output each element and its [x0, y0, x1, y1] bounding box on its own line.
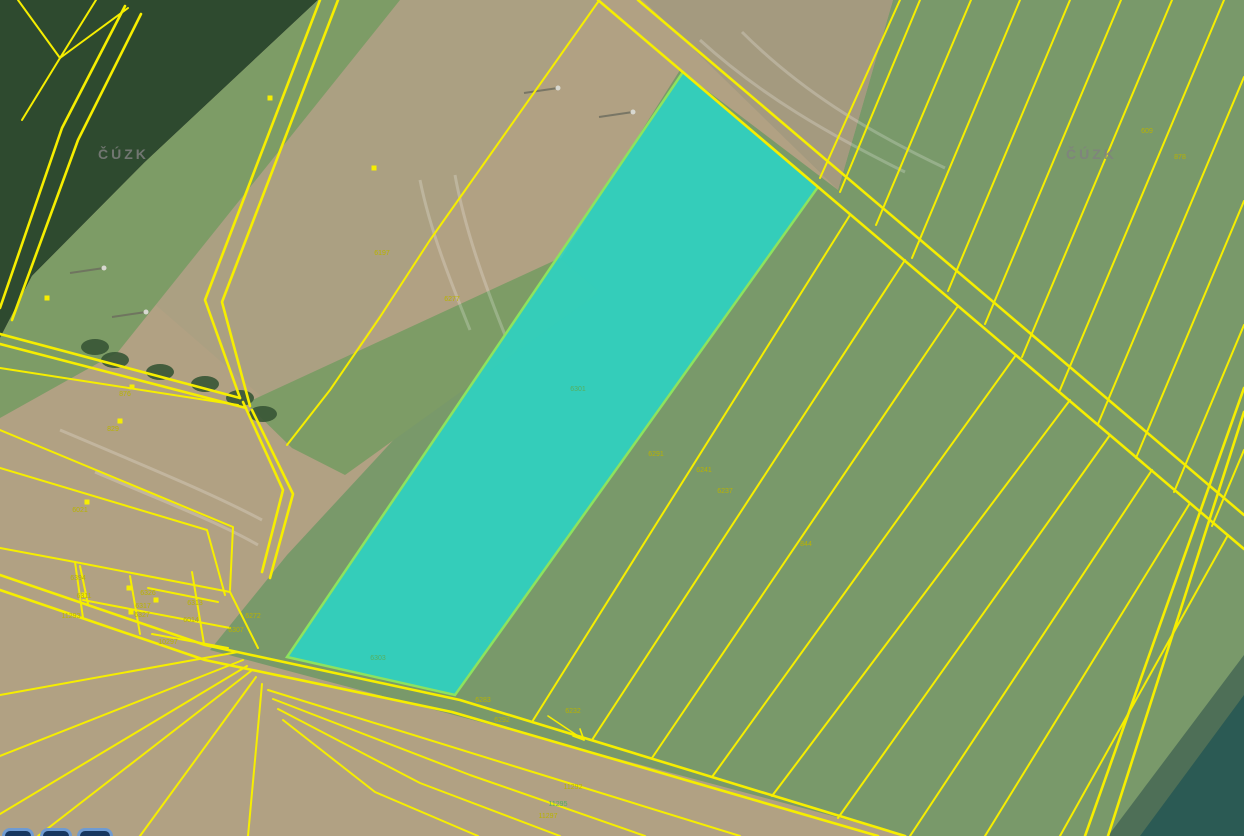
parcel-number-label: 609 — [1141, 128, 1153, 135]
parcel-number-label: 6283 — [475, 697, 491, 704]
cuzk-watermark: ČÚZK — [1066, 146, 1117, 162]
parcel-number-label: 6311 — [76, 593, 91, 600]
point-symbol — [154, 598, 159, 603]
point-symbol — [372, 166, 377, 171]
parcel-number-label: 876 — [119, 391, 131, 398]
parcel-number-label: 6313 — [187, 600, 203, 607]
map-button-3[interactable] — [77, 828, 113, 836]
parcel-number-label: 6394 — [70, 575, 86, 582]
parcel-number-label: 6272 — [245, 613, 261, 620]
parcel-number-label: 844 — [800, 541, 812, 548]
parcel-number-label: 878 — [1174, 154, 1186, 161]
cuzk-watermark: ČÚZK — [98, 146, 149, 162]
parcel-number-label: 6317 — [135, 603, 151, 610]
cadastral-map[interactable]: 6197627762916241623784460987887682960216… — [0, 0, 1244, 836]
point-symbol — [45, 296, 50, 301]
parcel-number-label: 6241 — [696, 467, 712, 474]
pylon-icon — [556, 86, 561, 91]
point-symbol — [129, 610, 134, 615]
parcel-number-label: 6021 — [72, 507, 88, 514]
parcel-number-label: 10297 — [158, 639, 178, 646]
parcel-number-label: 6237 — [717, 488, 733, 495]
parcel-number-label: 6307 — [228, 627, 244, 634]
parcel-number-label: 6301 — [570, 386, 586, 393]
point-symbol — [268, 96, 273, 101]
parcel-number-label: 6327 — [134, 612, 150, 619]
parcel-number-label: 6014 — [183, 617, 199, 624]
parcel-number-label: 11297 — [539, 813, 558, 820]
pylon-icon — [631, 110, 636, 115]
point-symbol — [130, 385, 135, 390]
parcel-number-label: 6292 — [494, 717, 510, 724]
point-symbol — [127, 586, 132, 591]
map-button-1[interactable] — [2, 828, 34, 836]
parcel-number-label: 829 — [107, 426, 119, 433]
tree-clump — [81, 339, 109, 355]
parcel-number-label: 6326 — [140, 590, 156, 597]
parcel-number-label: 11295 — [549, 801, 568, 808]
parcel-number-label: 6232 — [565, 708, 581, 715]
pylon-icon — [102, 266, 107, 271]
parcel-number-label: 11292 — [564, 784, 583, 791]
parcel-number-label: 11293 — [62, 613, 81, 620]
point-symbol — [118, 419, 123, 424]
point-symbol — [85, 500, 90, 505]
parcel-number-label: 6277 — [444, 296, 460, 303]
parcel-number-label: 6303 — [370, 655, 386, 662]
map-viewport[interactable]: 6197627762916241623784460987887682960216… — [0, 0, 1244, 836]
parcel-number-label: 6197 — [374, 250, 390, 257]
pylon-icon — [144, 310, 149, 315]
parcel-number-label: 6291 — [648, 451, 664, 458]
map-button-2[interactable] — [40, 828, 72, 836]
